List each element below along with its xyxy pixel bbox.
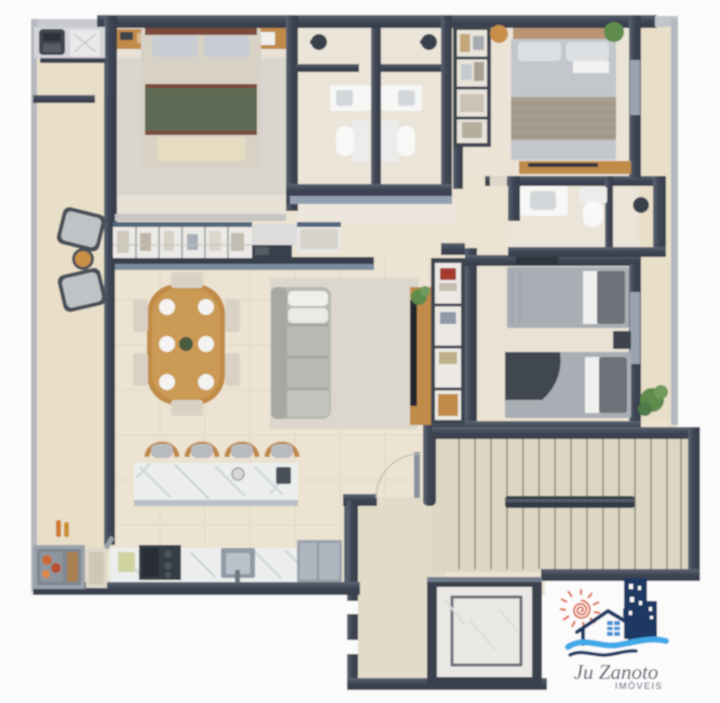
svg-text:IMÓVEIS: IMÓVEIS [615, 681, 663, 691]
